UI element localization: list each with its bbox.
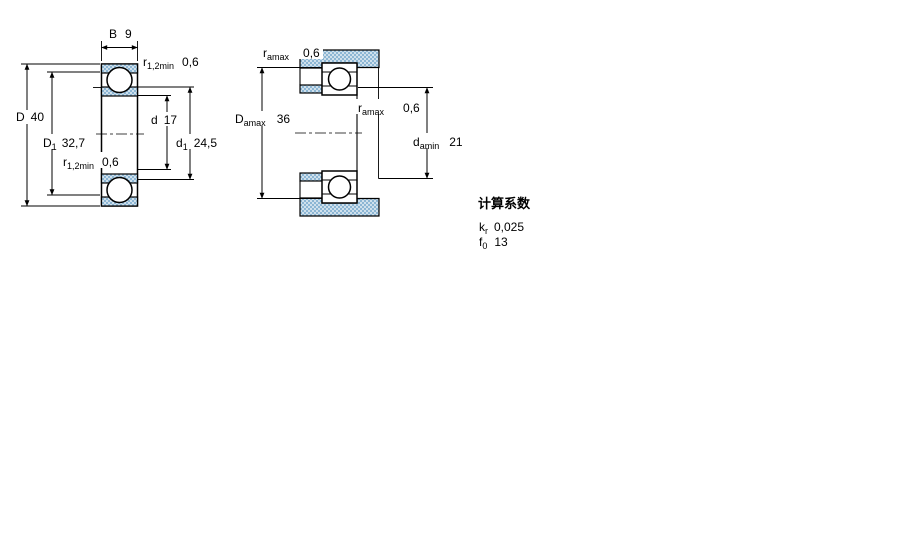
label-fillet-ramax-top: ramax0,6 [263, 42, 323, 62]
bearing-technical-drawing: B9 r1,2min0,6 D40 D132,7 r1,2min0,6 [0, 0, 900, 560]
dim-D1-label: D132,7 [43, 136, 85, 152]
bearing-outline-bottom [322, 171, 357, 203]
dim-d1-label: d124,5 [176, 136, 217, 152]
rolling-ball-bottom-right-figure [329, 176, 351, 198]
shaft-shoulder-bottom [300, 173, 322, 181]
bearing-outline-top [322, 63, 357, 95]
rolling-ball-top-right-figure [329, 68, 351, 90]
label-fillet-ramax-mid: ramax0,6 [356, 99, 421, 117]
dim-shoulder-diameter-D1: D132,7 [41, 72, 101, 195]
label-fillet-r-bottom: r1,2min0,6 [63, 152, 125, 171]
rolling-ball-top [107, 68, 132, 93]
dim-d-label: d17 [151, 113, 177, 127]
dim-shoulder-diameter-d1: d124,5 [138, 87, 219, 180]
svg-text:ramax0,6: ramax0,6 [263, 46, 320, 62]
shaft-shoulder-top [300, 85, 322, 93]
dim-B-label: B9 [109, 27, 132, 41]
dim-bore-diameter-d: d17 [138, 96, 177, 170]
factor-row-kr: kr0,025 [479, 220, 524, 236]
svg-text:r1,2min0,6: r1,2min0,6 [63, 155, 119, 171]
label-fillet-r-top: r1,2min0,6 [143, 55, 199, 71]
rolling-ball-bottom [107, 178, 132, 203]
calculation-factors-block: 计算系数 kr0,025 f013 [478, 196, 531, 251]
left-bearing-figure: B9 r1,2min0,6 D40 D132,7 r1,2min0,6 [14, 27, 219, 206]
calc-factors-heading: 计算系数 [478, 196, 531, 211]
factor-row-f0: f013 [479, 235, 508, 251]
dim-width-B: B9 [102, 27, 138, 61]
dim-D-label: D40 [16, 110, 44, 124]
drawing-canvas: B9 r1,2min0,6 D40 D132,7 r1,2min0,6 [0, 0, 900, 560]
right-mounting-figure: Damax36 ramax0,6 ramax0,6 damin21 [233, 42, 464, 216]
